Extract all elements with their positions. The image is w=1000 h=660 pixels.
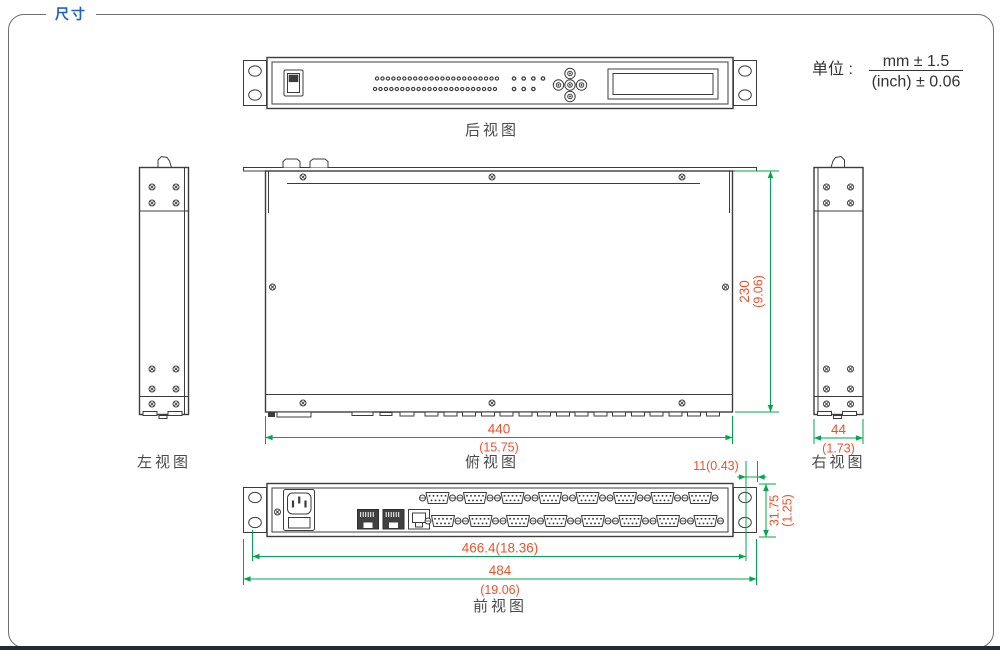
- side-tab: [831, 157, 845, 168]
- side-body: [140, 168, 189, 415]
- connector-top: [310, 159, 328, 168]
- ear-hole: [739, 66, 752, 76]
- ear-hole: [249, 517, 262, 527]
- connector-profiles: [268, 412, 720, 417]
- ground-screw: [275, 509, 281, 515]
- left-view-label: 左视图: [137, 454, 191, 471]
- right-view-label: 右视图: [811, 454, 865, 471]
- foot: [843, 412, 857, 416]
- ear-hole: [249, 90, 262, 100]
- dim-body-width: 440 (15.75): [266, 416, 733, 455]
- dimension-drawing-page: 尺寸: [0, 0, 1000, 660]
- side-tab: [158, 157, 172, 168]
- ear-hole: [739, 517, 752, 527]
- rj45-port: [358, 510, 379, 530]
- top-view-label: 俯视图: [465, 454, 519, 471]
- dim-total-width-inch: (19.06): [480, 583, 520, 597]
- dim-depth: 230 (9.06): [735, 171, 779, 412]
- dim-side-width: 44 (1.73): [814, 419, 863, 456]
- units-inch: (inch) ± 0.06: [872, 74, 961, 91]
- ear-hole: [249, 66, 262, 76]
- dim-panel-height-inch: (1.25): [781, 494, 795, 527]
- foot: [168, 412, 182, 416]
- side-body: [814, 168, 863, 415]
- dim-depth-mm: 230: [737, 280, 752, 303]
- rear-view: 后视图: [244, 58, 757, 140]
- power-switch: [284, 70, 303, 96]
- rear-view-label: 后视图: [465, 122, 519, 139]
- dim-body-width-inch: (15.75): [479, 441, 519, 455]
- left-view: 左视图: [137, 157, 191, 472]
- switch-top: [283, 159, 300, 168]
- dim-ear-offset-value: 11(0.43): [693, 459, 739, 473]
- foot: [143, 412, 157, 416]
- lcd-display: [608, 69, 718, 99]
- dim-mounting-width-value: 466.4(18.36): [462, 541, 539, 556]
- ethernet-ports: [358, 510, 430, 530]
- front-view-label: 前视图: [473, 598, 527, 615]
- dim-side-width-inch: (1.73): [822, 442, 855, 456]
- technical-drawing: 后视图 单位 : mm ± 1.5 (inch) ± 0.06 左视图: [0, 0, 1000, 660]
- dim-side-width-mm: 44: [831, 422, 847, 437]
- chassis-top: [266, 171, 733, 412]
- units-mm: mm ± 1.5: [883, 53, 950, 70]
- units-label: 单位 :: [812, 60, 853, 78]
- rj45-port: [383, 510, 404, 530]
- dim-total-width-mm: 484: [489, 563, 512, 578]
- ear-hole: [739, 90, 752, 100]
- ear-hole: [739, 492, 752, 502]
- dim-panel-height-mm: 31.75: [768, 495, 782, 526]
- power-inlet: [284, 490, 315, 531]
- dim-depth-inch: (9.06): [752, 275, 766, 308]
- ear-hole: [249, 492, 262, 502]
- dim-panel-height: 31.75 (1.25): [759, 484, 795, 537]
- foot: [818, 412, 832, 416]
- dim-body-width-mm: 440: [488, 422, 511, 437]
- units-note: 单位 : mm ± 1.5 (inch) ± 0.06: [812, 53, 963, 91]
